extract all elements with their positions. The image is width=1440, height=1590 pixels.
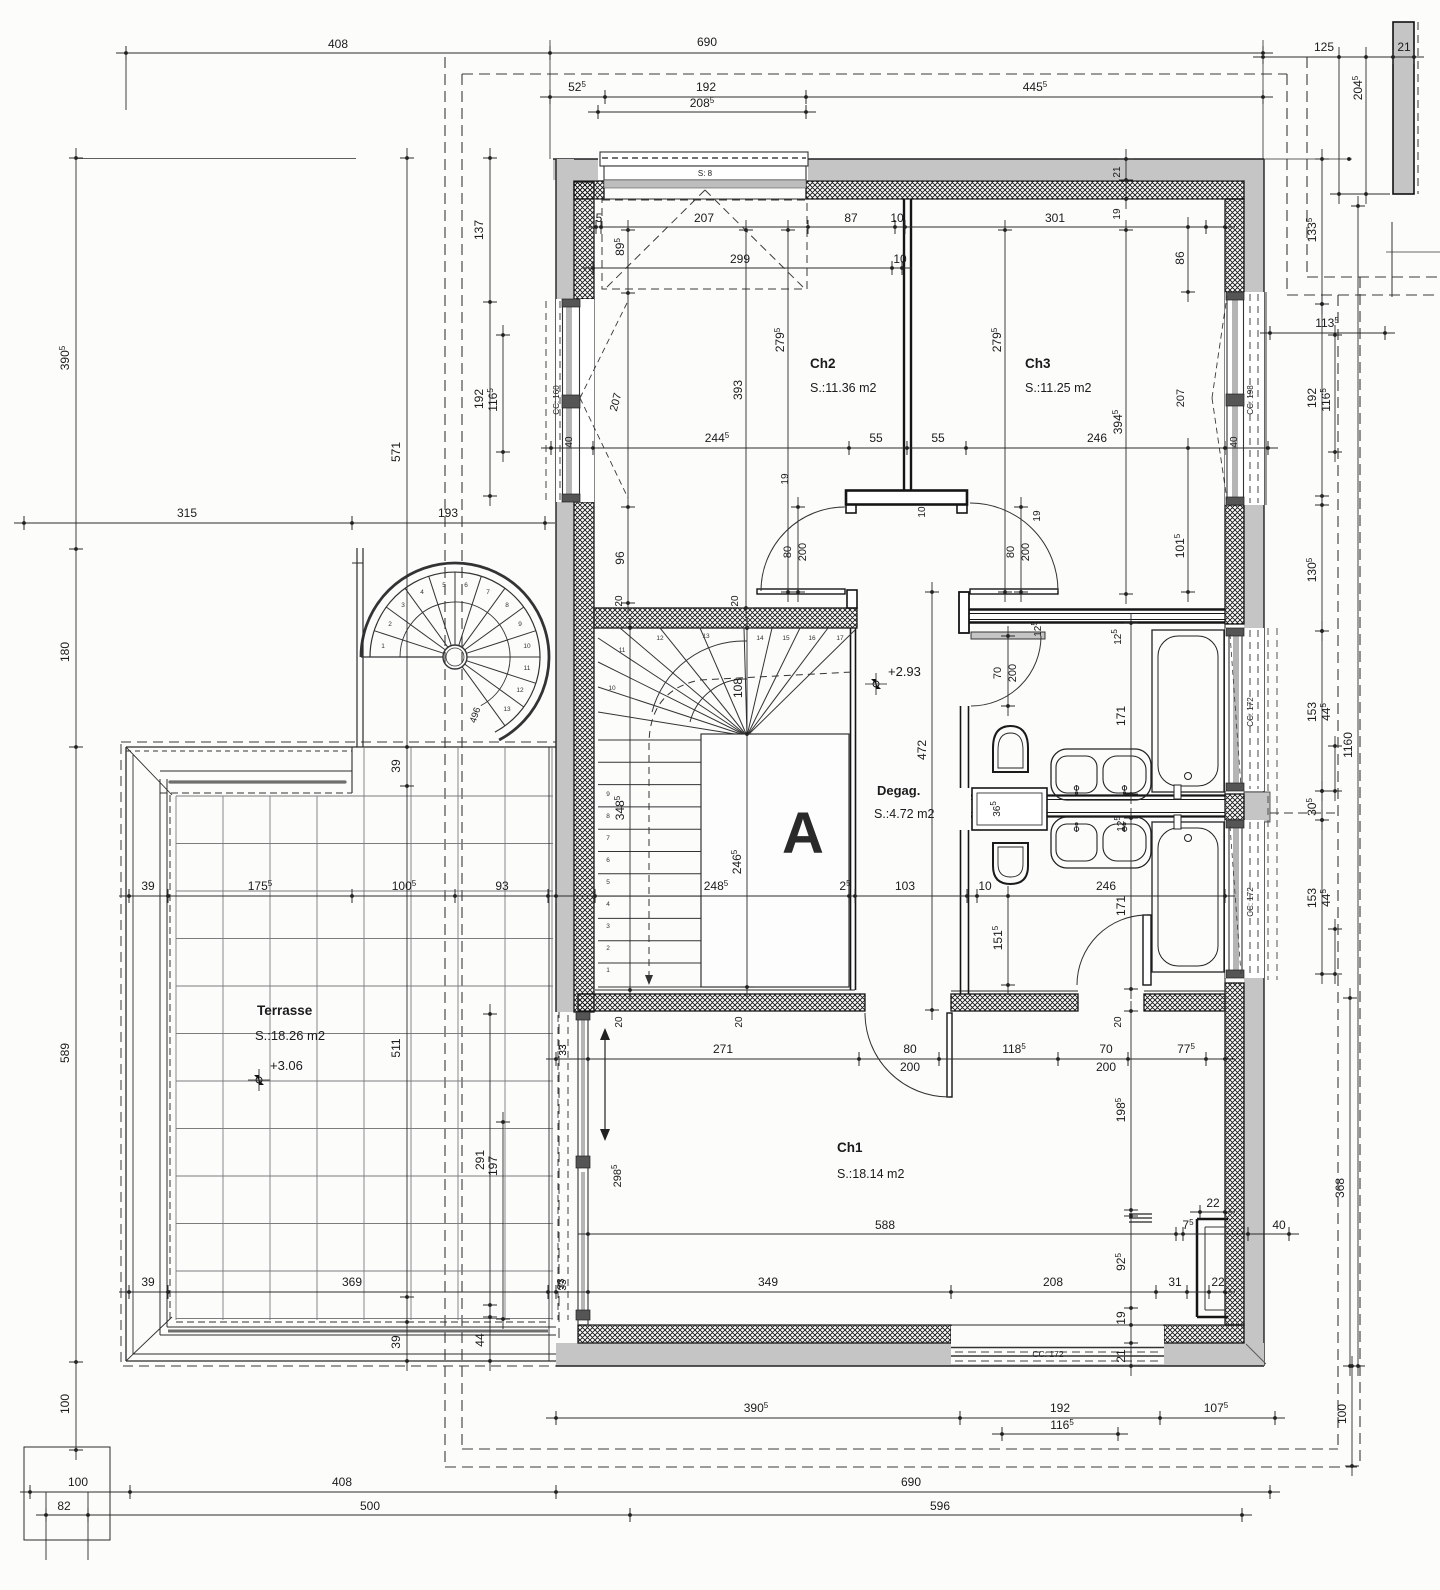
svg-text:137: 137 (472, 220, 486, 240)
svg-text:5: 5 (442, 582, 446, 589)
svg-text:80: 80 (903, 1042, 917, 1056)
svg-text:511: 511 (389, 1038, 403, 1057)
svg-text:192: 192 (1050, 1401, 1070, 1415)
svg-text:20: 20 (734, 1016, 745, 1028)
svg-text:39: 39 (141, 1275, 155, 1289)
svg-text:33: 33 (558, 1044, 569, 1056)
svg-text:55: 55 (931, 431, 945, 445)
svg-text:4: 4 (420, 589, 424, 596)
svg-text:192: 192 (472, 389, 486, 409)
svg-text:20: 20 (614, 595, 625, 607)
svg-text:CC: 172: CC: 172 (1246, 887, 1255, 917)
svg-text:393: 393 (731, 380, 745, 400)
svg-text:291: 291 (473, 1150, 487, 1170)
svg-text:S: 8: S: 8 (698, 169, 713, 178)
svg-text:193: 193 (438, 506, 458, 520)
svg-text:39: 39 (389, 1335, 403, 1349)
svg-text:19: 19 (1032, 510, 1043, 522)
svg-text:39: 39 (389, 759, 403, 773)
svg-text:125: 125 (1314, 40, 1334, 54)
svg-text:9: 9 (518, 621, 522, 628)
svg-text:CC: 160: CC: 160 (552, 385, 561, 415)
svg-text:246: 246 (1087, 431, 1107, 445)
svg-text:589: 589 (58, 1043, 72, 1063)
svg-text:472: 472 (915, 740, 929, 760)
svg-text:16: 16 (808, 635, 816, 642)
svg-text:153: 153 (1305, 888, 1319, 908)
svg-text:55: 55 (869, 431, 883, 445)
svg-text:A: A (782, 801, 824, 866)
svg-text:100: 100 (68, 1475, 88, 1489)
svg-text:19: 19 (1112, 208, 1123, 220)
svg-text:10: 10 (978, 879, 992, 893)
svg-text:93: 93 (495, 879, 509, 893)
svg-text:571: 571 (389, 442, 403, 462)
svg-text:82: 82 (57, 1499, 71, 1513)
svg-text:200: 200 (1020, 543, 1032, 561)
svg-text:Terrasse: Terrasse (257, 1003, 313, 1018)
svg-text:690: 690 (901, 1475, 921, 1489)
svg-text:153: 153 (1305, 702, 1319, 722)
svg-text:14: 14 (756, 635, 764, 642)
svg-text:7: 7 (486, 589, 490, 596)
svg-text:200: 200 (1096, 1060, 1116, 1074)
svg-text:315: 315 (177, 506, 197, 520)
svg-text:22: 22 (1206, 1196, 1220, 1210)
svg-text:200: 200 (1007, 664, 1019, 682)
svg-text:CC: 172: CC: 172 (1032, 1349, 1063, 1359)
svg-text:17: 17 (836, 635, 844, 642)
svg-text:500: 500 (360, 1499, 380, 1513)
svg-text:Ch2: Ch2 (810, 356, 836, 371)
svg-text:271: 271 (713, 1042, 733, 1056)
svg-text:Degag.: Degag. (877, 783, 920, 798)
svg-text:246: 246 (1096, 879, 1116, 893)
svg-text:2: 2 (388, 621, 392, 628)
svg-text:100: 100 (58, 1394, 72, 1414)
svg-text:7: 7 (606, 835, 610, 842)
svg-text:S.:4.72 m2: S.:4.72 m2 (874, 807, 934, 821)
svg-text:299: 299 (730, 252, 750, 266)
svg-text:9: 9 (606, 791, 610, 798)
svg-text:15: 15 (782, 635, 790, 642)
svg-text:301: 301 (1045, 211, 1065, 225)
svg-text:5: 5 (606, 879, 610, 886)
svg-text:207: 207 (694, 211, 714, 225)
svg-text:21: 21 (1112, 166, 1123, 178)
svg-text:1160: 1160 (1341, 732, 1355, 758)
svg-text:Ch3: Ch3 (1025, 356, 1051, 371)
svg-text:12: 12 (516, 687, 524, 694)
svg-text:S.:18.14 m2: S.:18.14 m2 (837, 1167, 904, 1181)
svg-text:33: 33 (556, 1278, 567, 1290)
svg-text:207: 207 (1175, 389, 1187, 407)
svg-text:CC: 198: CC: 198 (1246, 385, 1255, 415)
svg-text:S.:11.25 m2: S.:11.25 m2 (1025, 381, 1092, 395)
svg-text:10: 10 (890, 211, 904, 225)
svg-text:40: 40 (1229, 436, 1240, 448)
svg-text:31: 31 (1168, 1275, 1182, 1289)
svg-text:44: 44 (473, 1333, 487, 1347)
svg-text:596: 596 (930, 1499, 950, 1513)
svg-text:86: 86 (1173, 251, 1187, 265)
svg-text:10: 10 (917, 506, 928, 518)
svg-text:690: 690 (697, 35, 717, 49)
svg-text:588: 588 (875, 1218, 895, 1232)
svg-text:180: 180 (58, 642, 72, 662)
svg-text:368: 368 (1333, 1178, 1347, 1198)
svg-text:40: 40 (1272, 1218, 1286, 1232)
svg-text:80: 80 (1005, 546, 1017, 558)
svg-text:40: 40 (564, 436, 575, 448)
svg-text:22: 22 (1211, 1275, 1225, 1289)
svg-text:80: 80 (782, 546, 794, 558)
svg-text:20: 20 (1113, 1016, 1124, 1028)
svg-text:CC: 172: CC: 172 (1246, 697, 1255, 727)
svg-text:10: 10 (523, 643, 531, 650)
svg-text:21: 21 (1114, 1349, 1128, 1363)
svg-text:192: 192 (1305, 388, 1319, 408)
svg-text:6: 6 (464, 582, 468, 589)
svg-text:96: 96 (613, 551, 627, 565)
svg-text:19: 19 (1114, 1311, 1128, 1325)
svg-text:171: 171 (1114, 896, 1128, 916)
svg-text:70: 70 (992, 667, 1004, 679)
svg-text:+2.93: +2.93 (888, 664, 921, 679)
svg-text:197: 197 (486, 1156, 500, 1176)
svg-text:10: 10 (608, 685, 616, 692)
svg-text:10: 10 (893, 252, 907, 266)
svg-text:+3.06: +3.06 (270, 1058, 303, 1073)
svg-text:13: 13 (503, 706, 511, 713)
svg-text:408: 408 (328, 37, 348, 51)
svg-text:1: 1 (381, 643, 385, 650)
svg-text:200: 200 (797, 543, 809, 561)
svg-text:6: 6 (606, 857, 610, 864)
svg-text:108: 108 (731, 678, 745, 698)
svg-text:Ch1: Ch1 (837, 1140, 863, 1155)
svg-text:4: 4 (606, 901, 610, 908)
svg-text:349: 349 (758, 1275, 778, 1289)
svg-text:S.:11.36 m2: S.:11.36 m2 (810, 381, 877, 395)
svg-text:S.:18.26 m2: S.:18.26 m2 (255, 1028, 325, 1043)
svg-text:21: 21 (1397, 40, 1411, 54)
svg-text:103: 103 (895, 879, 915, 893)
svg-text:20: 20 (730, 595, 741, 607)
svg-text:200: 200 (900, 1060, 920, 1074)
svg-text:2: 2 (606, 945, 610, 952)
svg-text:20: 20 (614, 1016, 625, 1028)
svg-text:3: 3 (606, 923, 610, 930)
svg-text:12: 12 (656, 635, 664, 642)
svg-text:11: 11 (524, 665, 531, 672)
svg-text:408: 408 (332, 1475, 352, 1489)
svg-text:8: 8 (505, 602, 509, 609)
svg-text:5: 5 (596, 211, 603, 225)
svg-text:369: 369 (342, 1275, 362, 1289)
svg-text:11: 11 (619, 647, 626, 654)
svg-text:3: 3 (401, 602, 405, 609)
svg-text:13: 13 (702, 633, 710, 640)
svg-text:70: 70 (1099, 1042, 1113, 1056)
svg-text:8: 8 (606, 813, 610, 820)
svg-text:39: 39 (141, 879, 155, 893)
svg-text:100: 100 (1335, 1404, 1349, 1424)
svg-text:19: 19 (780, 473, 791, 485)
svg-text:171: 171 (1114, 706, 1128, 726)
svg-text:192: 192 (696, 80, 716, 94)
svg-text:208: 208 (1043, 1275, 1063, 1289)
svg-text:87: 87 (844, 211, 858, 225)
svg-text:1: 1 (606, 967, 610, 974)
